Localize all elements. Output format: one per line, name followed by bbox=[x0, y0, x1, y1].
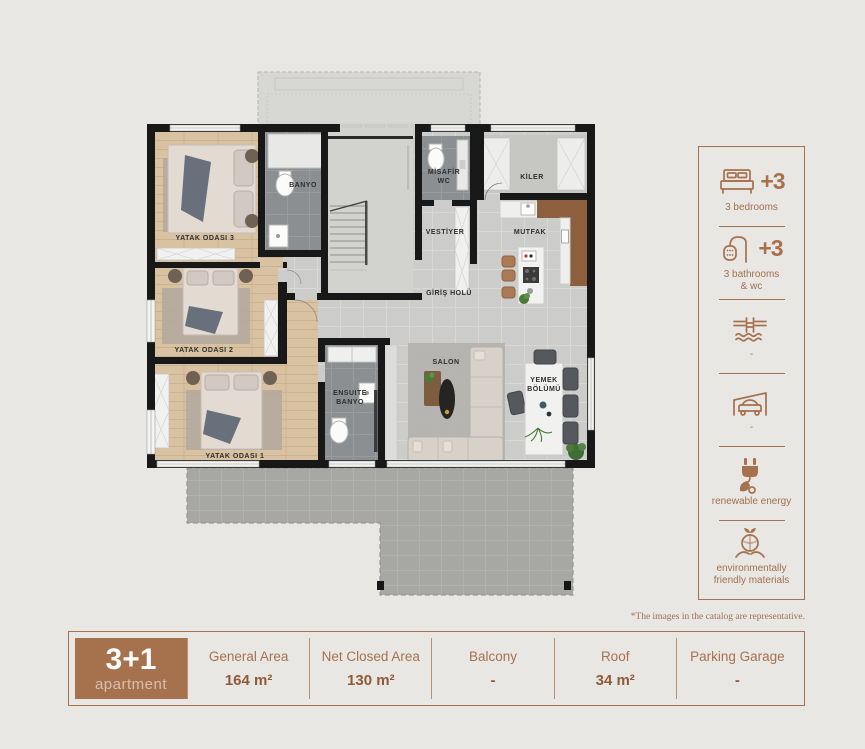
floor-plan: YATAK ODASI 3 BANYO MİSAFİR WC KİLER VES… bbox=[133, 60, 693, 605]
amenity-label: - bbox=[750, 422, 753, 435]
unit-type-box: 3+1 apartment bbox=[75, 638, 187, 699]
kitchen-label: MUTFAK bbox=[514, 229, 546, 236]
amenity-garage: - bbox=[699, 374, 804, 447]
bedrooms-count: +3 bbox=[760, 170, 784, 193]
summary-cell-balcony: Balcony - bbox=[431, 638, 553, 699]
amenity-eco-materials: environmentallyfriendly materials bbox=[699, 521, 804, 594]
bathrooms-count: +3 bbox=[758, 237, 782, 260]
amenity-label: environmentallyfriendly materials bbox=[714, 563, 790, 588]
bedroom3-label: YATAK ODASI 3 bbox=[176, 235, 235, 242]
terrace bbox=[187, 468, 573, 595]
garage-icon bbox=[730, 387, 770, 417]
amenity-label: - bbox=[750, 349, 753, 362]
bed-icon bbox=[718, 167, 756, 197]
svg-text:WC: WC bbox=[438, 178, 451, 185]
guest-wc-label: MİSAFİR bbox=[428, 168, 460, 176]
dining-label: YEMEK bbox=[530, 377, 557, 384]
svg-text:BANYO: BANYO bbox=[336, 399, 364, 406]
stairwell-floor bbox=[328, 128, 413, 293]
summary-bar: 3+1 apartment General Area 164 m² Net Cl… bbox=[68, 631, 805, 706]
amenity-bedrooms: +3 3 bedrooms bbox=[699, 153, 804, 226]
amenities-panel: +3 3 bedrooms +3 3 bathrooms& wc bbox=[698, 146, 805, 600]
amenity-bathrooms: +3 3 bathrooms& wc bbox=[699, 227, 804, 300]
summary-cell-net-closed-area: Net Closed Area 130 m² bbox=[309, 638, 431, 699]
summary-cell-roof: Roof 34 m² bbox=[554, 638, 676, 699]
living-room-label: SALON bbox=[433, 359, 460, 366]
summary-cell-general-area: General Area 164 m² bbox=[187, 638, 309, 699]
entrance-hall-label: GİRİŞ HOLÜ bbox=[426, 288, 472, 297]
unit-type: 3+1 bbox=[106, 645, 157, 675]
unit-type-sublabel: apartment bbox=[95, 676, 167, 693]
bedroom1-label: YATAK ODASI 1 bbox=[206, 453, 265, 460]
shower-icon bbox=[720, 232, 754, 266]
pantry-label: KİLER bbox=[520, 173, 544, 181]
cloakroom-closet bbox=[455, 207, 469, 293]
cloakroom-label: VESTİYER bbox=[426, 228, 465, 236]
amenity-renewable-energy: renewable energy bbox=[699, 447, 804, 520]
footnote: *The images in the catalog are represent… bbox=[0, 612, 805, 622]
pool-icon bbox=[732, 315, 768, 343]
plug-leaf-icon bbox=[735, 457, 765, 495]
summary-cell-parking-garage: Parking Garage - bbox=[676, 638, 798, 699]
svg-text:BÖLÜMÜ: BÖLÜMÜ bbox=[527, 384, 561, 393]
roof-outline bbox=[258, 72, 480, 130]
amenity-label: 3 bathrooms& wc bbox=[724, 269, 780, 294]
amenity-label: 3 bedrooms bbox=[725, 202, 778, 215]
ensuite-label: ENSUITE bbox=[333, 390, 367, 397]
bathroom-label: BANYO bbox=[289, 182, 317, 189]
amenity-pool: - bbox=[699, 300, 804, 373]
amenity-label: renewable energy bbox=[712, 496, 792, 509]
bedroom2-label: YATAK ODASI 2 bbox=[175, 347, 234, 354]
marble-strip bbox=[385, 345, 397, 462]
eco-materials-icon bbox=[732, 526, 768, 560]
